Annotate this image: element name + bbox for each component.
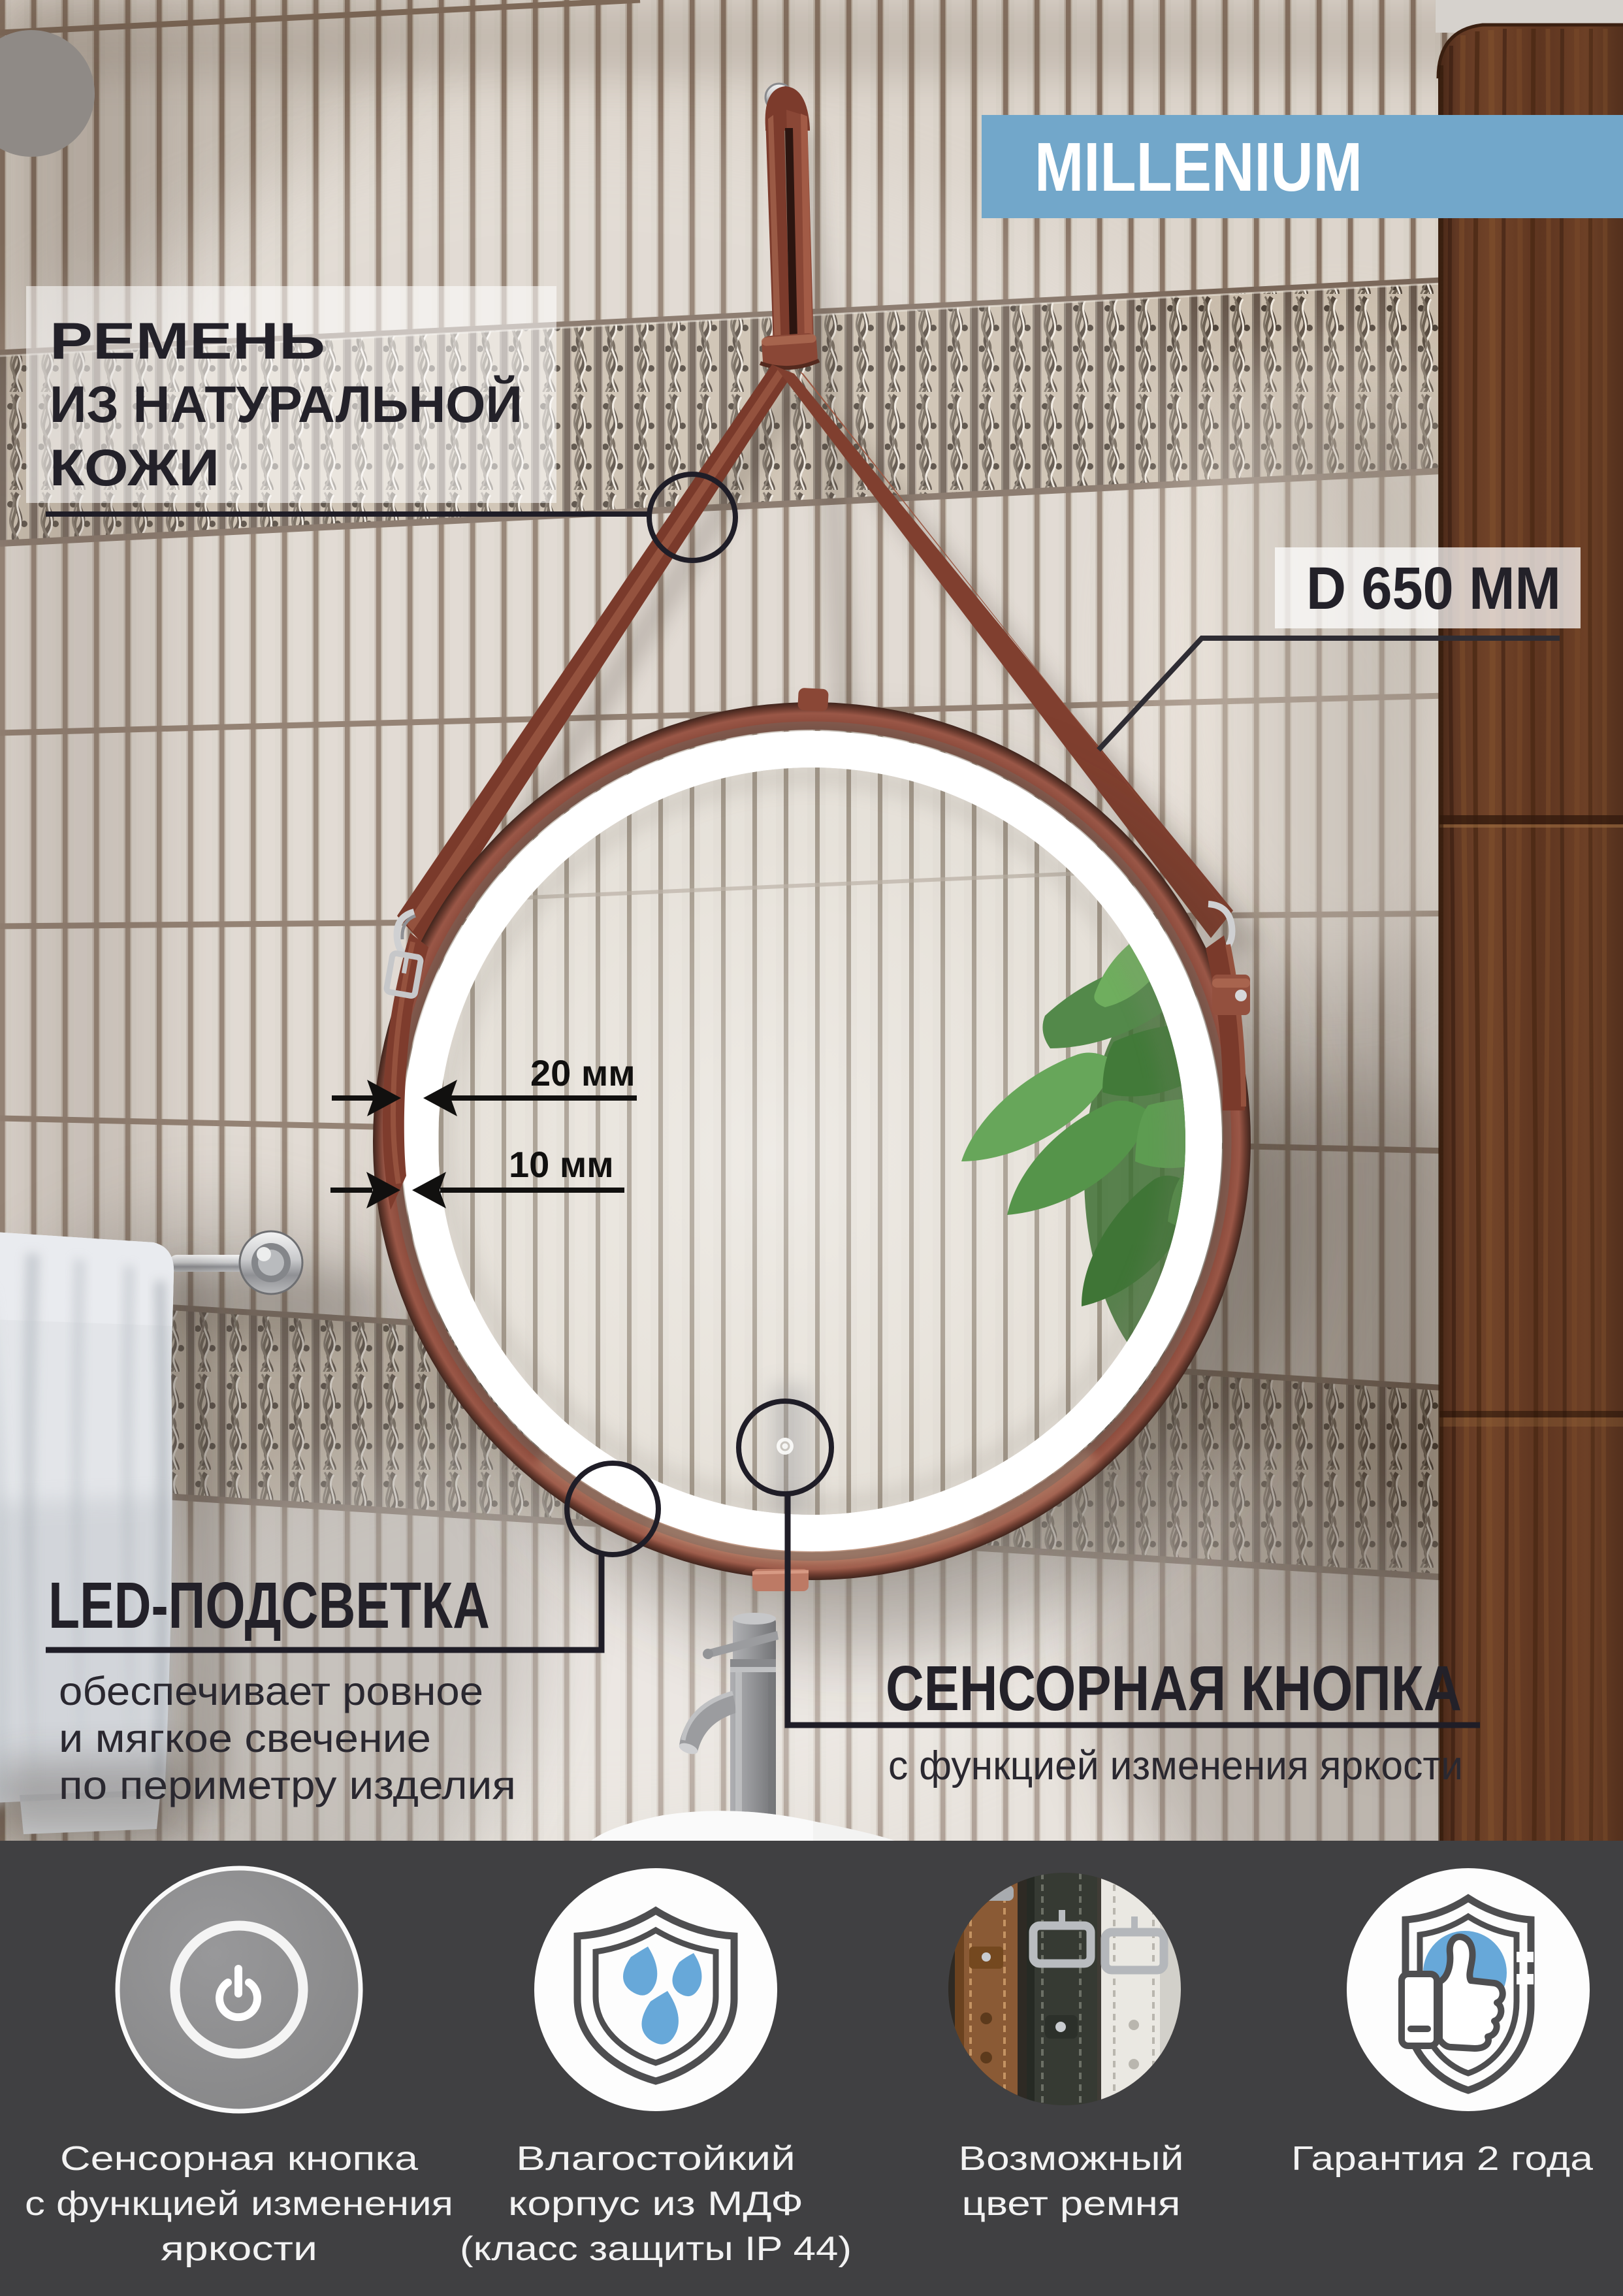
- svg-text:(класс защиты IP 44): (класс защиты IP 44): [460, 2230, 852, 2268]
- svg-text:10 мм: 10 мм: [509, 1144, 614, 1185]
- svg-text:Гарантия 2 года: Гарантия 2 года: [1291, 2140, 1593, 2178]
- svg-text:по периметру изделия: по периметру изделия: [59, 1763, 516, 1807]
- svg-text:Сенсорная кнопка: Сенсорная кнопка: [60, 2140, 418, 2178]
- svg-text:и мягкое свечение: и мягкое свечение: [59, 1716, 431, 1760]
- svg-text:корпус из МДФ: корпус из МДФ: [508, 2185, 803, 2223]
- svg-text:с функцией изменения яркости: с функцией изменения яркости: [888, 1743, 1463, 1788]
- svg-text:яркости: яркости: [161, 2230, 317, 2268]
- svg-text:MILLENIUM: MILLENIUM: [1035, 129, 1362, 206]
- svg-text:РЕМЕНЬ: РЕМЕНЬ: [50, 312, 325, 370]
- svg-text:ИЗ НАТУРАЛЬНОЙ: ИЗ НАТУРАЛЬНОЙ: [50, 374, 522, 433]
- svg-text:20 мм: 20 мм: [530, 1052, 635, 1093]
- svg-text:с функцией изменения: с функцией изменения: [25, 2185, 453, 2223]
- svg-text:КОЖИ: КОЖИ: [50, 438, 219, 496]
- svg-text:D 650 MM: D 650 MM: [1306, 555, 1561, 622]
- svg-text:Влагостойкий: Влагостойкий: [516, 2140, 795, 2178]
- svg-text:обеспечивает ровное: обеспечивает ровное: [59, 1669, 483, 1713]
- svg-text:LED-ПОДСВЕТКА: LED-ПОДСВЕТКА: [48, 1569, 490, 1642]
- svg-text:Возможный: Возможный: [959, 2140, 1184, 2178]
- svg-text:цвет ремня: цвет ремня: [962, 2185, 1181, 2223]
- svg-text:СЕНСОРНАЯ КНОПКА: СЕНСОРНАЯ КНОПКА: [886, 1653, 1462, 1724]
